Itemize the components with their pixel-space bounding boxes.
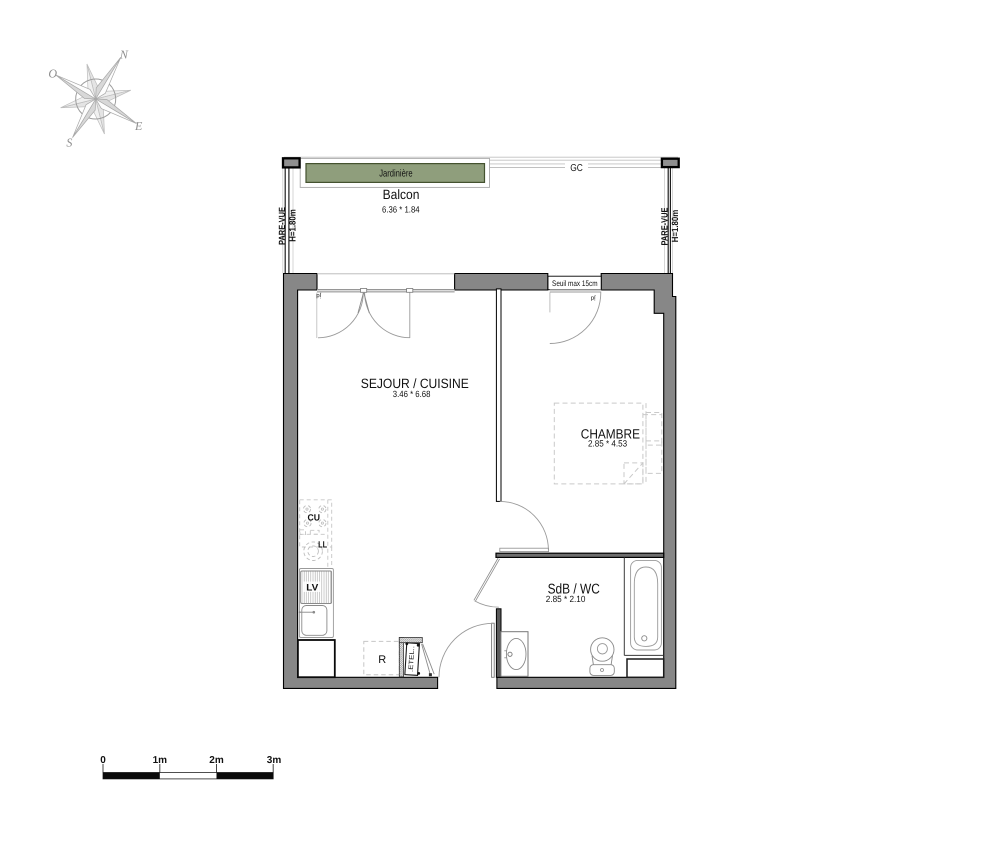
svg-text:2.85 * 4.53: 2.85 * 4.53 — [588, 439, 627, 449]
svg-text:Seuil max 15cm: Seuil max 15cm — [552, 279, 598, 288]
svg-text:GC: GC — [570, 163, 583, 174]
svg-text:R: R — [378, 654, 386, 666]
svg-text:H=1.80m: H=1.80m — [670, 210, 680, 243]
svg-text:CU: CU — [308, 512, 321, 522]
svg-text:O: O — [48, 67, 57, 81]
svg-text:Jardinière: Jardinière — [379, 169, 413, 180]
svg-text:3.46 * 6.68: 3.46 * 6.68 — [393, 389, 431, 399]
svg-text:Balcon: Balcon — [383, 187, 420, 202]
svg-text:PARE-VUE: PARE-VUE — [277, 207, 287, 245]
svg-text:N: N — [119, 48, 129, 62]
svg-text:H=1.80m: H=1.80m — [287, 209, 297, 242]
svg-text:2.85 * 2.10: 2.85 * 2.10 — [546, 594, 586, 604]
svg-text:LV: LV — [306, 583, 319, 594]
svg-text:S: S — [66, 136, 72, 150]
svg-text:jd: jd — [316, 292, 322, 299]
svg-text:jd: jd — [591, 295, 597, 302]
svg-text:1m: 1m — [153, 755, 168, 766]
svg-text:LL: LL — [318, 540, 327, 550]
svg-text:2m: 2m — [209, 755, 224, 766]
svg-text:3m: 3m — [267, 755, 282, 766]
svg-text:PARE-VUE: PARE-VUE — [659, 208, 669, 246]
svg-text:0: 0 — [100, 755, 106, 766]
svg-text:E: E — [134, 119, 143, 133]
svg-text:6.36 * 1.84: 6.36 * 1.84 — [382, 205, 420, 215]
